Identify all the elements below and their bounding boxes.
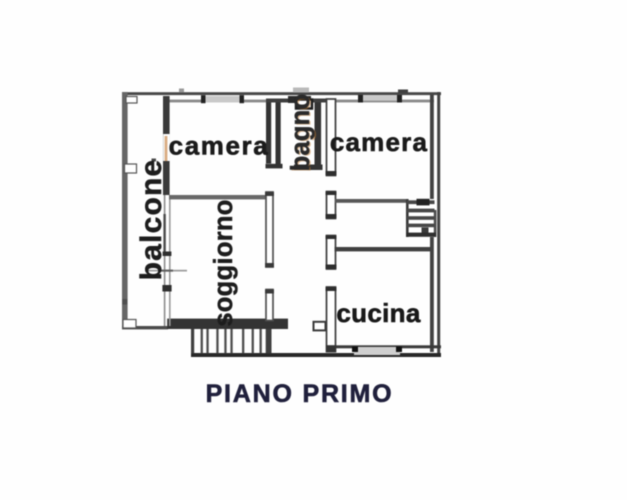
svg-text:cucina: cucina — [336, 298, 420, 328]
svg-text:soggiorno: soggiorno — [210, 199, 238, 326]
svg-text:bagno: bagno — [287, 94, 315, 172]
svg-text:balcone: balcone — [135, 159, 168, 281]
svg-text:camera: camera — [330, 127, 428, 157]
svg-text:camera: camera — [169, 131, 270, 161]
svg-text:PIANO PRIMO: PIANO PRIMO — [206, 380, 394, 408]
